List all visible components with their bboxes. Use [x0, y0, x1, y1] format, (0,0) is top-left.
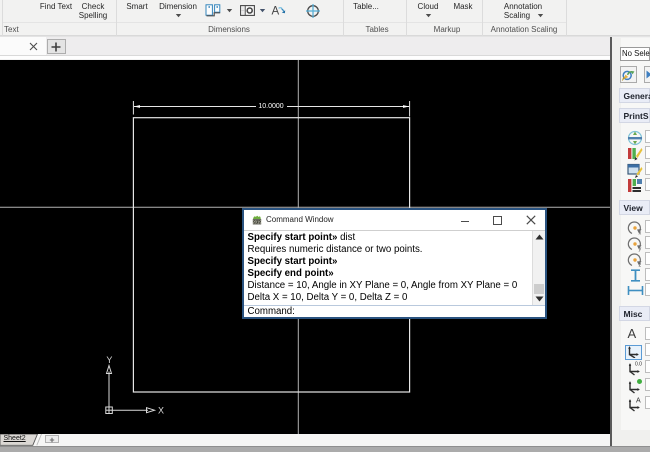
svg-text:Y: Y [106, 355, 112, 365]
svg-text:2019: 2019 [252, 220, 262, 225]
svg-text:A: A [636, 398, 641, 405]
svg-text:z: z [639, 263, 642, 269]
svg-text:10.0000: 10.0000 [258, 102, 283, 109]
svg-text:X: X [158, 405, 164, 415]
svg-text:A: A [272, 6, 280, 17]
svg-text:0.0: 0.0 [635, 362, 642, 368]
